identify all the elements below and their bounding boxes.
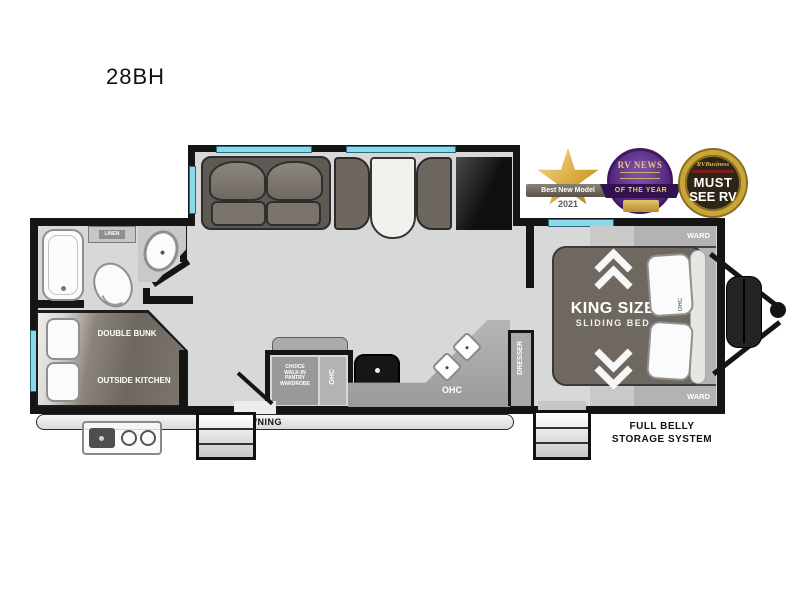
must-see-rv-badge: RVBusiness MUST SEE RV	[678, 148, 748, 222]
outside-kitchen-label: OUTSIDE KITCHEN	[88, 377, 180, 386]
linen-label: LINEN	[99, 230, 125, 239]
rv-news-badge: RV NEWS OF THE YEAR	[604, 146, 678, 226]
bathroom-wall-return	[143, 288, 150, 304]
bunk-pillow-top	[46, 318, 80, 360]
best-new-model-badge: Best New Model 2021	[528, 148, 608, 224]
full-belly-line1: FULL BELLY	[604, 420, 720, 433]
pantry-ohc-label: OHC	[329, 369, 337, 385]
must-see-brand: RVBusiness	[688, 161, 738, 168]
must-see-line1: MUST	[686, 175, 740, 190]
entry-steps-bedroom	[533, 410, 591, 460]
window-slide-side	[189, 166, 196, 214]
entry-steps-main	[196, 412, 256, 460]
bunk-pillow-bottom	[46, 362, 80, 402]
outside-burner-icon	[121, 430, 137, 446]
must-see-line2: SEE RV	[686, 189, 740, 204]
floorplan-page: 28BH Best New Model 2021 RV NEWS OF THE …	[0, 0, 800, 600]
wardrobe-top: WARD	[634, 226, 716, 248]
linen-cabinet: LINEN	[88, 226, 136, 243]
window-slide-right	[346, 146, 456, 153]
rv-news-banner	[623, 200, 659, 212]
hitch-coupler-icon	[770, 302, 786, 318]
bed-pillow-bottom	[646, 321, 694, 382]
dresser-label: DRESSER	[517, 341, 525, 375]
drain-icon	[61, 286, 66, 291]
double-bunk-label: DOUBLE BUNK	[86, 330, 168, 339]
bunk-wall	[179, 350, 187, 407]
bathtub	[42, 229, 84, 301]
wardrobe-bottom: WARD	[634, 384, 716, 406]
full-belly-line2: STORAGE SYSTEM	[604, 433, 720, 446]
bathroom-wall-lower-left	[38, 300, 84, 308]
rv-news-divider	[620, 172, 660, 179]
window-slide-left	[216, 146, 312, 153]
dinette-table	[370, 157, 416, 239]
bed-pillow-top	[646, 253, 694, 318]
pantry-ohc-cabinet: OHC	[320, 357, 346, 405]
page-title: 28BH	[106, 64, 165, 90]
best-new-model-year: 2021	[528, 199, 608, 209]
best-new-model-ribbon: Best New Model	[526, 184, 610, 197]
pantry-cabinet: CHOICE WALK-IN PANTRY WARDROBE	[272, 357, 318, 405]
outside-kitchen-unit	[82, 421, 162, 455]
mattress-edge	[690, 250, 706, 384]
ward-top-label: WARD	[634, 226, 716, 240]
bedroom-ohc-label: OHC	[678, 298, 684, 311]
outside-burner-icon	[140, 430, 156, 446]
rv-news-brand: RV NEWS	[607, 160, 673, 170]
rv-news-ribbon: OF THE YEAR	[600, 184, 682, 198]
bathroom-wall-lower-right	[143, 296, 193, 304]
dinette-bench-left	[334, 157, 370, 230]
counter-ohc-label: OHC	[432, 386, 472, 396]
sofa	[201, 156, 331, 230]
propane-tanks	[726, 276, 762, 348]
refrigerator	[456, 157, 512, 230]
must-see-red-bar	[692, 170, 734, 173]
pantry-label-line4: WARDROBE	[272, 382, 318, 388]
dresser: DRESSER	[508, 330, 534, 406]
outside-sink-icon	[89, 428, 115, 448]
bedroom-wall	[526, 226, 534, 288]
dinette-bench-right	[416, 157, 452, 230]
ward-bottom-label: WARD	[634, 386, 716, 401]
